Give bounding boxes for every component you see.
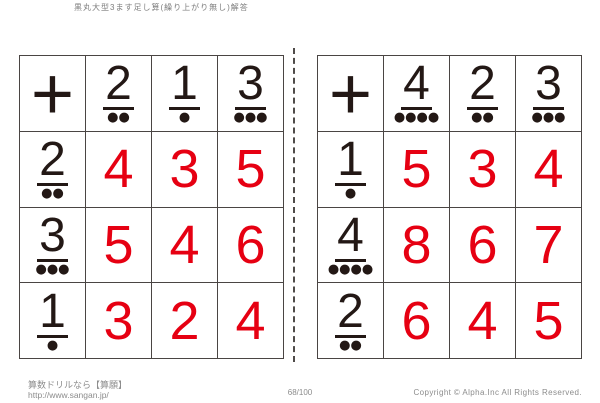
addend-digit: 1 (39, 291, 66, 333)
answer-cell: 4 (152, 208, 218, 284)
answer-cell: 3 (450, 132, 516, 208)
answer-cell: 6 (450, 208, 516, 284)
row-header-cell: 1 ● (318, 132, 384, 208)
answer-digit: 5 (235, 142, 265, 196)
col-header-cell: 2 ●● (450, 56, 516, 132)
dot-group: ● (47, 340, 58, 351)
dot-group: ●●●● (394, 112, 439, 123)
answer-cell: 5 (218, 132, 284, 208)
dot-group: ●●●● (328, 264, 373, 275)
answer-cell: 5 (86, 208, 152, 284)
dot-group: ● (179, 112, 190, 123)
dot-group: ●●● (233, 112, 267, 123)
answer-digit: 8 (401, 218, 431, 272)
answer-digit: 4 (235, 294, 265, 348)
col-header-cell: 3 ●●● (218, 56, 284, 132)
answer-cell: 3 (86, 283, 152, 359)
worksheet-page: 黒丸大型3ます足し算(繰り上がり無し)解答 + 2 ●● 1 ● 3 ●●● 2… (0, 0, 600, 403)
answer-digit: 4 (103, 142, 133, 196)
dot-group: ●● (471, 112, 494, 123)
col-header-cell: 1 ● (152, 56, 218, 132)
answer-digit: 4 (467, 294, 497, 348)
answer-cell: 8 (384, 208, 450, 284)
dot-group: ●●● (531, 112, 565, 123)
plus-icon: + (31, 64, 74, 123)
answer-digit: 4 (533, 142, 563, 196)
answer-cell: 4 (450, 283, 516, 359)
answer-digit: 6 (467, 218, 497, 272)
addition-grid-left: + 2 ●● 1 ● 3 ●●● 2 ●● 4 3 5 (19, 55, 284, 359)
addend-digit: 3 (237, 63, 264, 105)
cut-line-divider (293, 48, 295, 362)
answer-cell: 5 (384, 132, 450, 208)
plus-icon: + (329, 64, 372, 123)
answer-digit: 5 (533, 294, 563, 348)
addend-digit: 2 (39, 139, 66, 181)
addend-digit: 4 (403, 63, 430, 105)
copyright-notice: Copyright © Alpha.Inc All Rights Reserve… (413, 388, 582, 397)
row-header-cell: 4 ●●●● (318, 208, 384, 284)
row-header-cell: 3 ●●● (20, 208, 86, 284)
addend-digit: 4 (337, 215, 364, 257)
answer-digit: 4 (169, 218, 199, 272)
dot-group: ● (345, 188, 356, 199)
answer-digit: 5 (103, 218, 133, 272)
answer-digit: 2 (169, 294, 199, 348)
operator-cell: + (318, 56, 384, 132)
answer-digit: 5 (401, 142, 431, 196)
answer-digit: 3 (169, 142, 199, 196)
addend-digit: 1 (171, 63, 198, 105)
dot-group: ●●● (35, 264, 69, 275)
answer-digit: 7 (533, 218, 563, 272)
row-header-cell: 2 ●● (318, 283, 384, 359)
col-header-cell: 3 ●●● (516, 56, 582, 132)
addend-digit: 2 (337, 291, 364, 333)
addend-digit: 3 (535, 63, 562, 105)
addend-digit: 2 (469, 63, 496, 105)
col-header-cell: 4 ●●●● (384, 56, 450, 132)
addend-digit: 2 (105, 63, 132, 105)
answer-cell: 3 (152, 132, 218, 208)
dot-group: ●● (41, 188, 64, 199)
answer-digit: 6 (235, 218, 265, 272)
operator-cell: + (20, 56, 86, 132)
answer-cell: 7 (516, 208, 582, 284)
page-title: 黒丸大型3ます足し算(繰り上がり無し)解答 (74, 2, 249, 13)
answer-digit: 3 (103, 294, 133, 348)
answer-cell: 6 (384, 283, 450, 359)
answer-cell: 6 (218, 208, 284, 284)
answer-cell: 4 (86, 132, 152, 208)
row-header-cell: 2 ●● (20, 132, 86, 208)
dot-group: ●● (339, 340, 362, 351)
answer-digit: 3 (467, 142, 497, 196)
answer-cell: 2 (152, 283, 218, 359)
addition-grid-right: + 4 ●●●● 2 ●● 3 ●●● 1 ● 5 3 4 (317, 55, 582, 359)
dot-group: ●● (107, 112, 130, 123)
answer-digit: 6 (401, 294, 431, 348)
answer-cell: 4 (516, 132, 582, 208)
addend-digit: 3 (39, 215, 66, 257)
addend-digit: 1 (337, 139, 364, 181)
row-header-cell: 1 ● (20, 283, 86, 359)
answer-cell: 4 (218, 283, 284, 359)
answer-cell: 5 (516, 283, 582, 359)
col-header-cell: 2 ●● (86, 56, 152, 132)
